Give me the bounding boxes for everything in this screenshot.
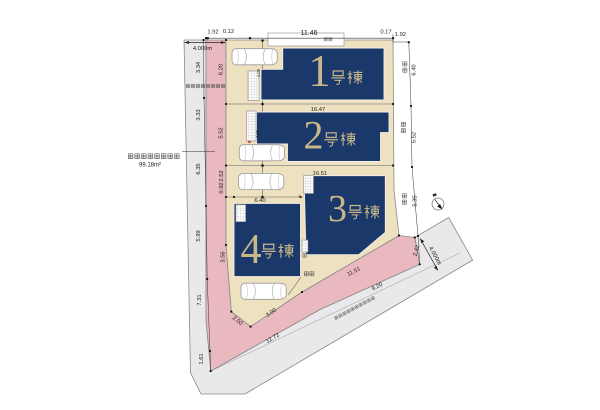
svg-text:3.33: 3.33 <box>196 109 202 120</box>
svg-text:1.92: 1.92 <box>207 29 218 35</box>
svg-text:3: 3 <box>328 188 347 230</box>
svg-text:4: 4 <box>241 227 262 273</box>
svg-text:0.12: 0.12 <box>223 29 234 35</box>
svg-text:5.52: 5.52 <box>219 127 225 138</box>
svg-text:4.05: 4.05 <box>255 129 260 138</box>
svg-text:1.92: 1.92 <box>395 32 406 38</box>
svg-text:6.20: 6.20 <box>219 64 225 75</box>
svg-text:11.46: 11.46 <box>301 30 318 37</box>
svg-text:0.92: 0.92 <box>219 182 225 193</box>
svg-text:2.52: 2.52 <box>219 170 225 181</box>
svg-text:16.51: 16.51 <box>313 171 328 177</box>
svg-text:99.18m²: 99.18m² <box>139 163 161 169</box>
svg-text:1.61: 1.61 <box>199 353 205 364</box>
svg-text:1: 1 <box>308 46 331 96</box>
svg-text:6.40: 6.40 <box>412 64 418 75</box>
svg-text:4.000m: 4.000m <box>193 46 213 52</box>
svg-text:4.05: 4.05 <box>256 68 261 77</box>
svg-text:0.17: 0.17 <box>380 29 391 35</box>
svg-text:6.40: 6.40 <box>254 198 265 204</box>
svg-text:5.35: 5.35 <box>413 195 419 206</box>
svg-text:6.35: 6.35 <box>196 163 202 174</box>
svg-text:5.99: 5.99 <box>196 230 202 241</box>
svg-text:16.47: 16.47 <box>311 107 326 113</box>
svg-text:7.31: 7.31 <box>197 294 203 305</box>
svg-text:2: 2 <box>304 112 324 157</box>
svg-text:3.56: 3.56 <box>221 251 227 262</box>
svg-text:3.34: 3.34 <box>196 61 202 73</box>
svg-text:5.52: 5.52 <box>412 132 418 143</box>
